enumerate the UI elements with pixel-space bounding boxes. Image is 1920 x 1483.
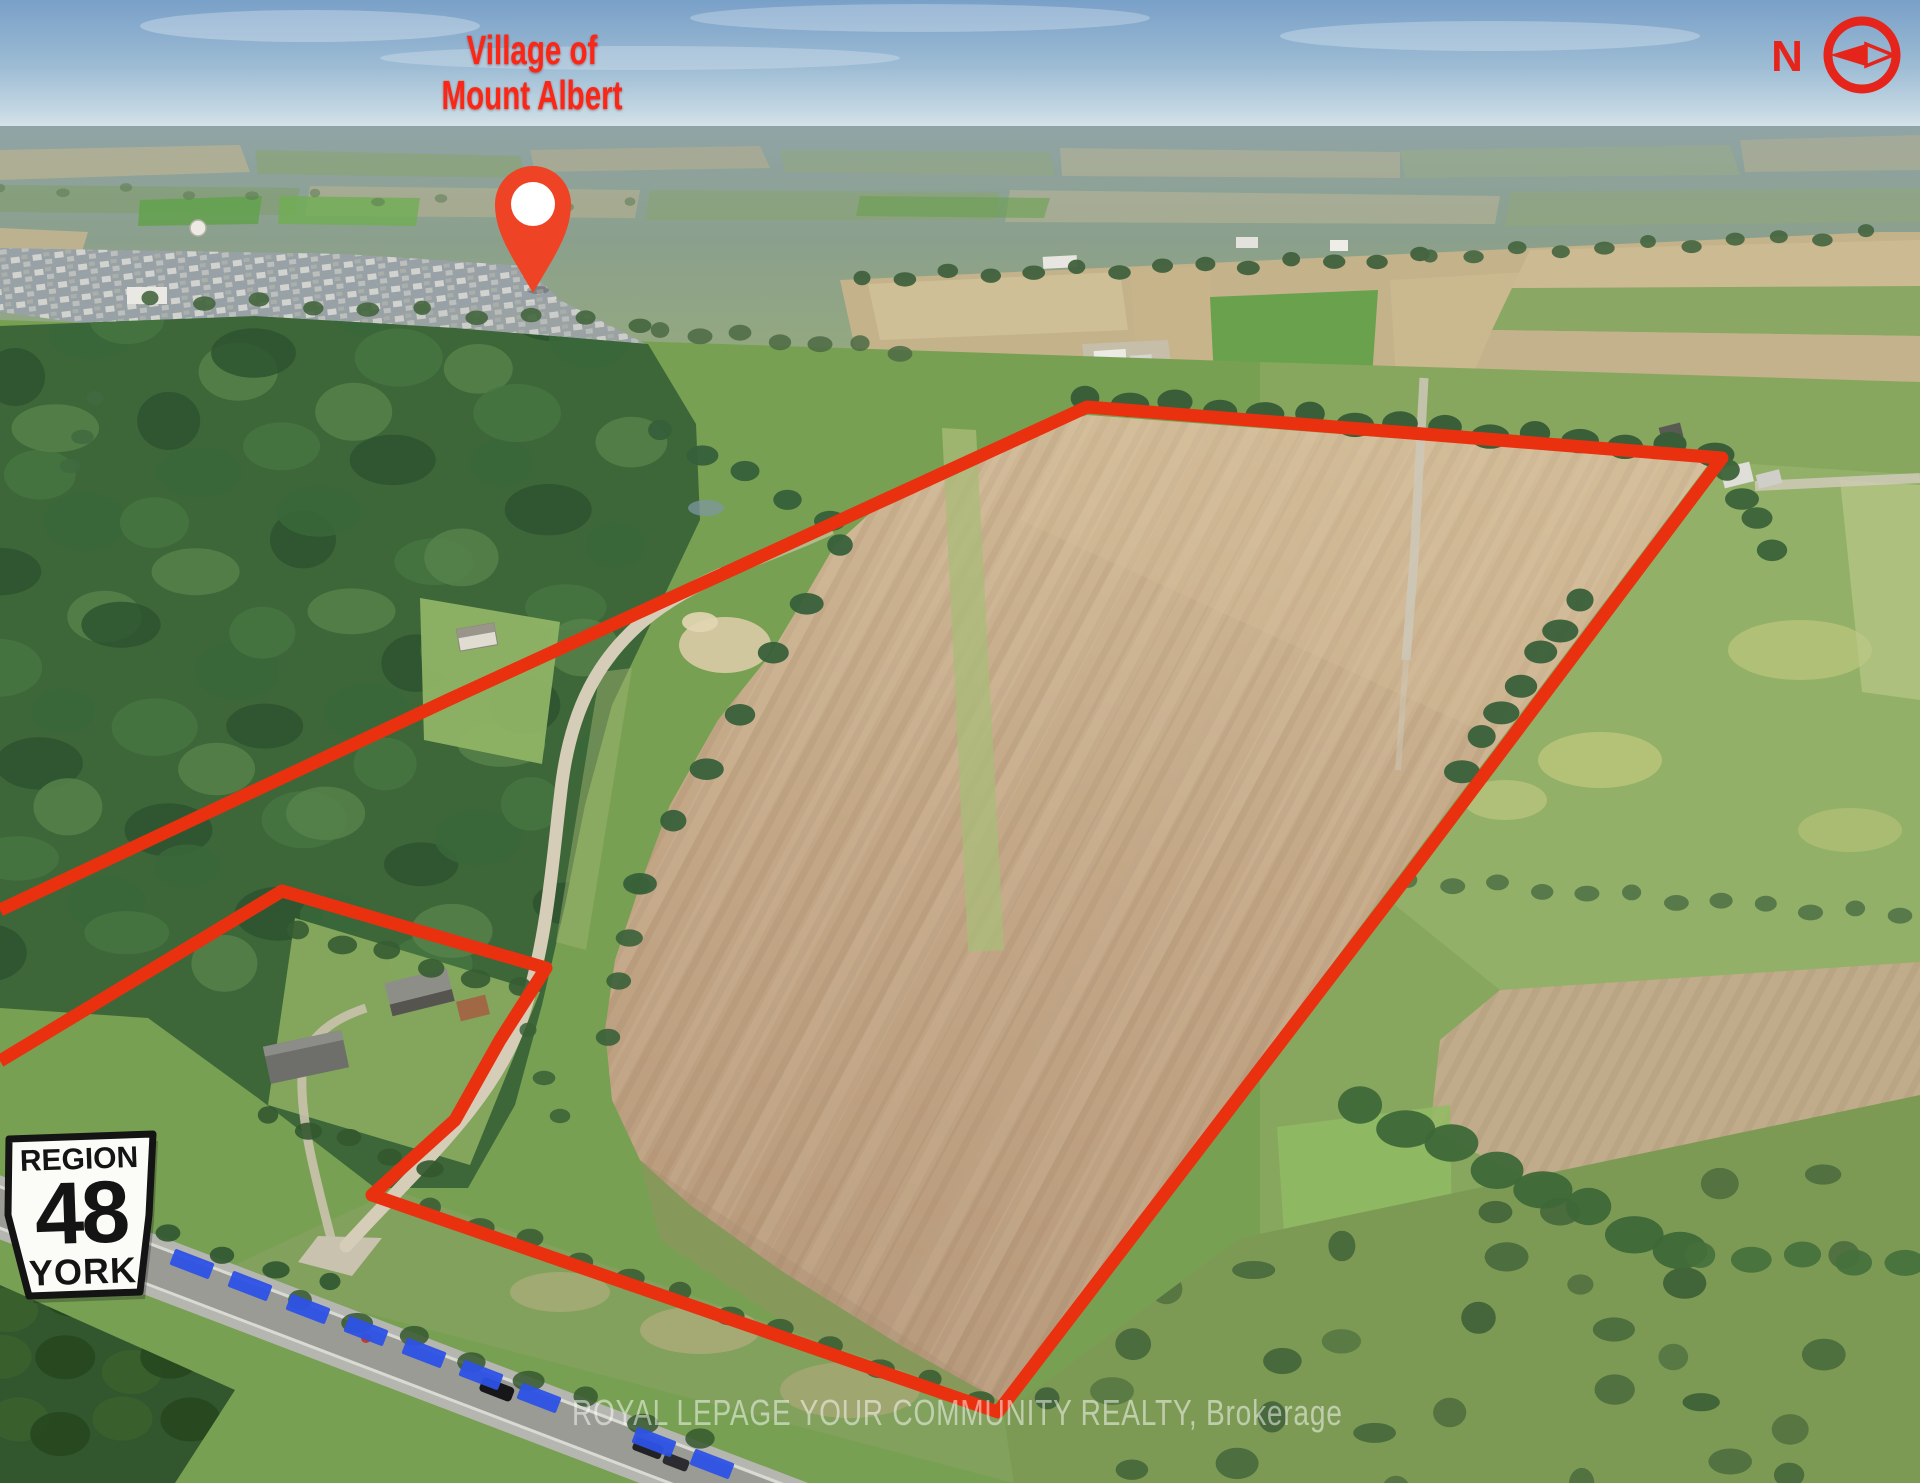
sign-number-text: 48 bbox=[33, 1161, 129, 1263]
compass-letter: N bbox=[1771, 32, 1803, 81]
aerial-photo-scene: N REGION 48 YORK bbox=[0, 0, 1920, 1483]
aerial-photo-listing-image: N REGION 48 YORK Village of Mount Albert… bbox=[0, 0, 1920, 1483]
watermark: ROYAL LEPAGE YOUR COMMUNITY REALTY, Brok… bbox=[572, 1392, 1343, 1434]
sign-york-text: YORK bbox=[28, 1249, 137, 1294]
water-tower bbox=[190, 220, 206, 236]
village-label-line2: Mount Albert bbox=[436, 73, 629, 118]
sky bbox=[0, 0, 1920, 134]
village-label: Village of Mount Albert bbox=[398, 28, 666, 118]
village-label-line1: Village of bbox=[436, 28, 629, 73]
region-48-york-sign: REGION 48 YORK bbox=[8, 1134, 158, 1303]
